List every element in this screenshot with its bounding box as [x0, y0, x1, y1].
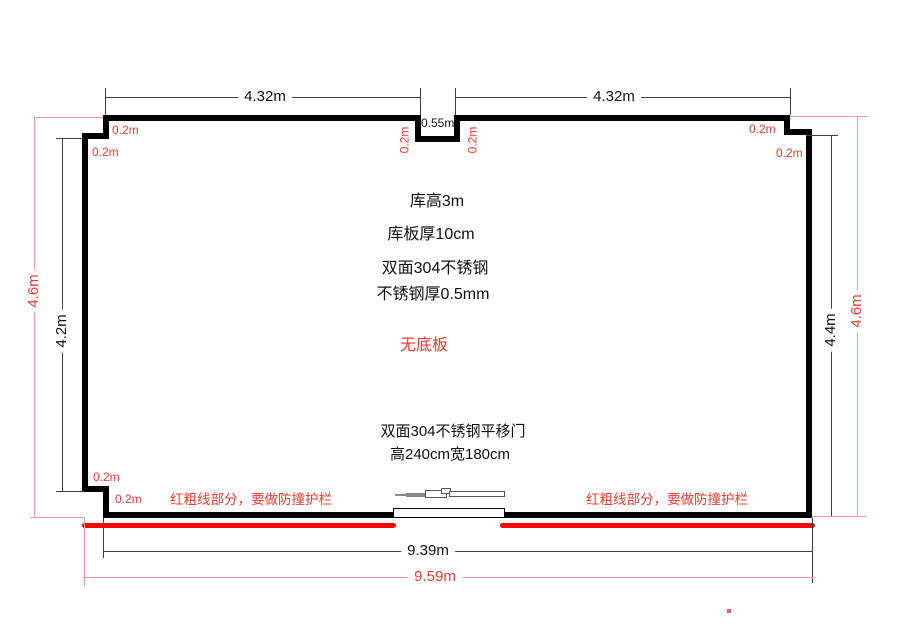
note-door-spec: 双面304不锈钢平移门	[380, 423, 525, 440]
door-track-bar	[406, 493, 426, 497]
offset-label-notch-left: 0.2m	[398, 127, 411, 154]
dim-tick-top-4	[790, 88, 791, 115]
offset-label-notch-right: 0.2m	[466, 127, 479, 154]
guardrail-line-left	[82, 523, 396, 528]
note-panel-thick: 库板厚10cm	[387, 226, 474, 244]
guardrail-line-right	[500, 523, 815, 528]
dim-label-notch-width: 0.55m	[421, 117, 454, 130]
note-no-base-plate: 无底板	[400, 337, 448, 355]
wall-left	[82, 133, 88, 492]
dim-label-top-right: 4.32m	[587, 89, 641, 106]
offset-label-top-left-1: 0.2m	[112, 124, 139, 137]
dim-label-left-outer: 4.6m	[26, 269, 43, 312]
dim-ext-left-bottom	[56, 491, 84, 492]
red-dot-artifact	[727, 609, 731, 613]
note-guardrail-right: 红粗线部分，要做防撞护栏	[586, 488, 748, 508]
offset-label-top-right-2: 0.2m	[776, 147, 803, 160]
wall-top-right-segment	[454, 115, 790, 121]
sliding-door-panel	[393, 508, 505, 518]
dim-label-left-inner: 4.2m	[54, 309, 71, 352]
wall-right	[806, 129, 812, 518]
dim-tick-top-1	[105, 88, 106, 115]
wall-top-left-segment	[103, 115, 421, 121]
dim-label-right-inner: 4.4m	[823, 308, 840, 351]
dim-line-left-outer	[34, 117, 35, 517]
dim-tick-bottom-left	[103, 518, 104, 558]
dim-line-bottom-inner	[103, 551, 812, 552]
dim-ext-right-top	[806, 135, 838, 136]
note-room-height: 库高3m	[410, 193, 464, 211]
dim-tick-top-3	[455, 88, 456, 115]
note-material: 双面304不锈钢	[382, 260, 489, 278]
dim-ext-red-top-right	[790, 116, 868, 117]
dim-ext-red-bottom-right	[812, 516, 866, 517]
dim-label-top-left: 4.32m	[238, 89, 292, 106]
wall-notch-right	[454, 115, 460, 142]
offset-label-top-left-2: 0.2m	[92, 146, 119, 159]
dim-ext-red-bottom-left	[30, 517, 84, 518]
dim-ext-red-top-left	[34, 117, 103, 118]
note-guardrail-left: 红粗线部分，要做防撞护栏	[170, 488, 332, 508]
offset-label-bottom-left-1: 0.2m	[93, 471, 120, 484]
floor-plan-canvas: 4.32m 4.32m 0.55m 4.6m 4.2m 4.4m 4.6m 9.…	[0, 0, 900, 632]
dim-ext-left-top	[56, 138, 84, 139]
dim-tick-top-2	[420, 88, 421, 115]
note-steel-thick: 不锈钢厚0.5mm	[377, 286, 490, 304]
note-door-size: 高240cm宽180cm	[390, 446, 510, 463]
offset-label-top-right-1: 0.2m	[749, 123, 776, 136]
offset-label-bottom-left-2: 0.2m	[115, 493, 142, 506]
dim-tick-red-bottom-left	[84, 517, 85, 586]
dim-label-bottom-outer: 9.59m	[408, 569, 462, 586]
dim-tick-bottom-right	[812, 518, 813, 583]
door-track-rail	[449, 491, 505, 497]
dim-label-bottom-inner: 9.39m	[401, 543, 455, 560]
dim-label-right-outer: 4.6m	[849, 289, 866, 332]
